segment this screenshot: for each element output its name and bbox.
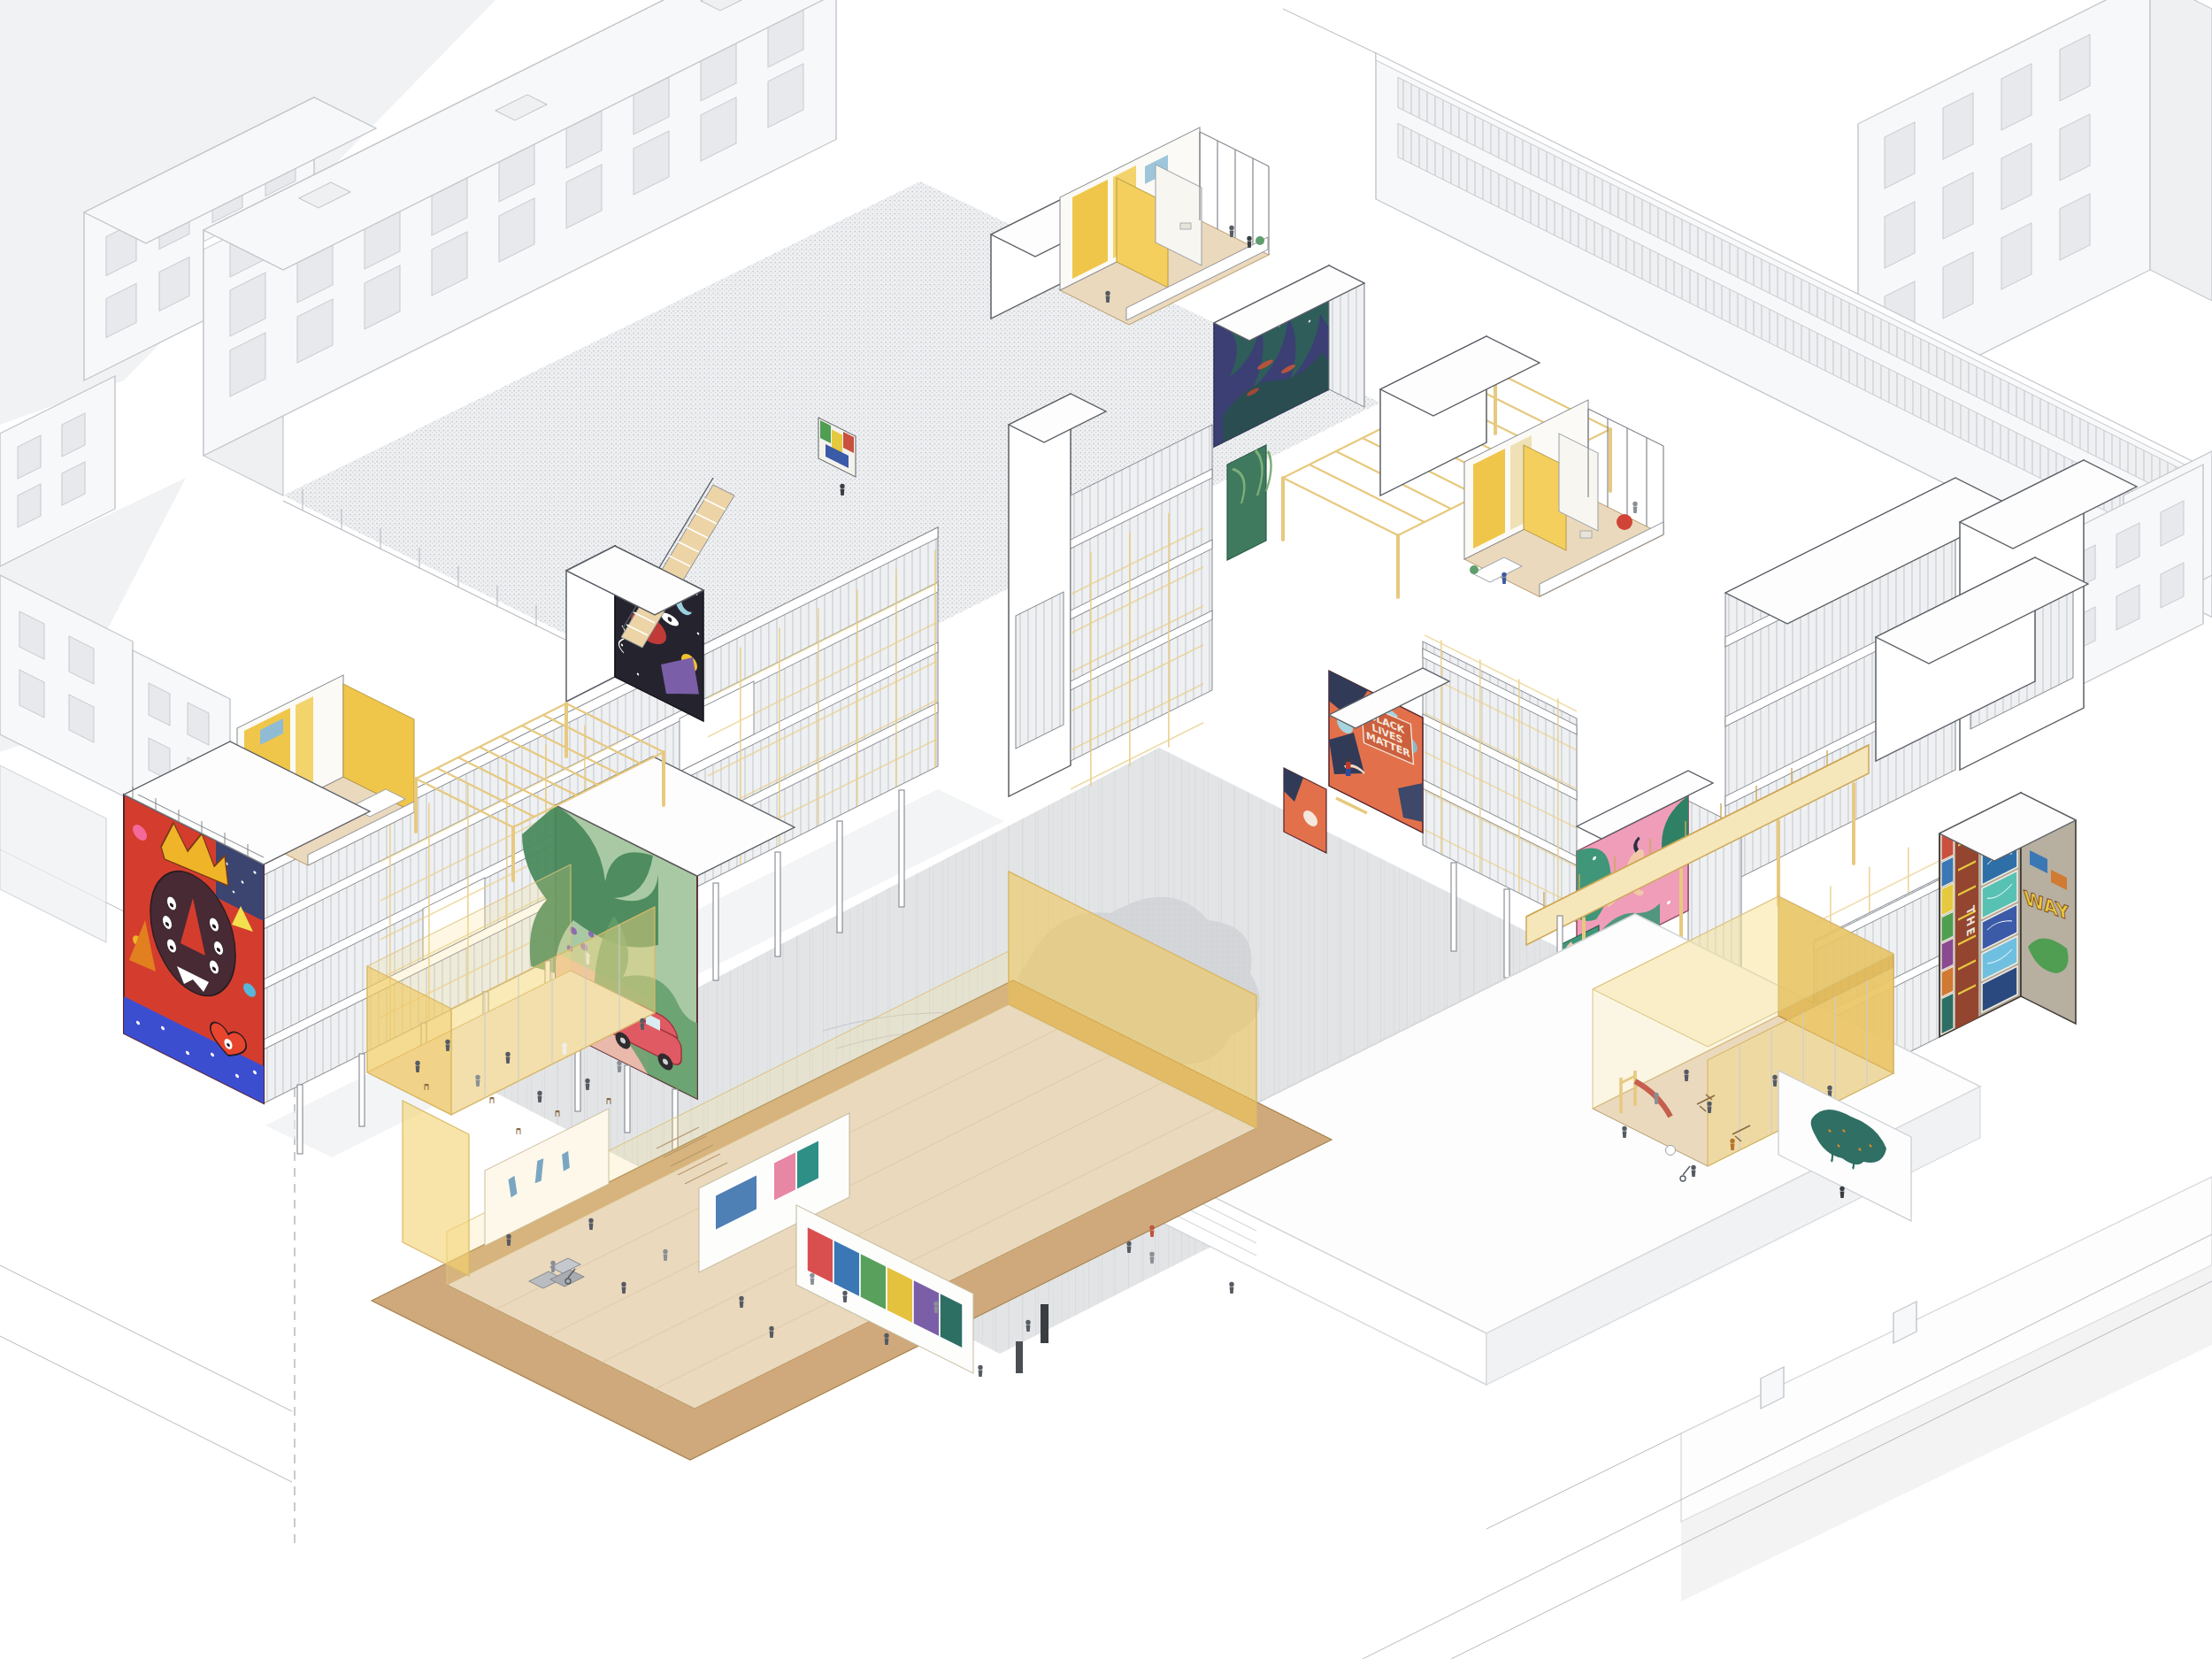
illustration-stage: BLACK LIVES MATTER [0, 0, 2212, 1659]
mural-graffiti-collage: THE WAY [1939, 793, 2076, 1037]
ball [1666, 1146, 1676, 1156]
small-table [1180, 223, 1191, 229]
graffiti-word-the: THE [1964, 903, 1977, 941]
axonometric-scene: BLACK LIVES MATTER [0, 0, 2212, 1659]
red-table [1617, 514, 1632, 530]
house-plant [1470, 565, 1479, 574]
house-plant [1256, 236, 1264, 245]
